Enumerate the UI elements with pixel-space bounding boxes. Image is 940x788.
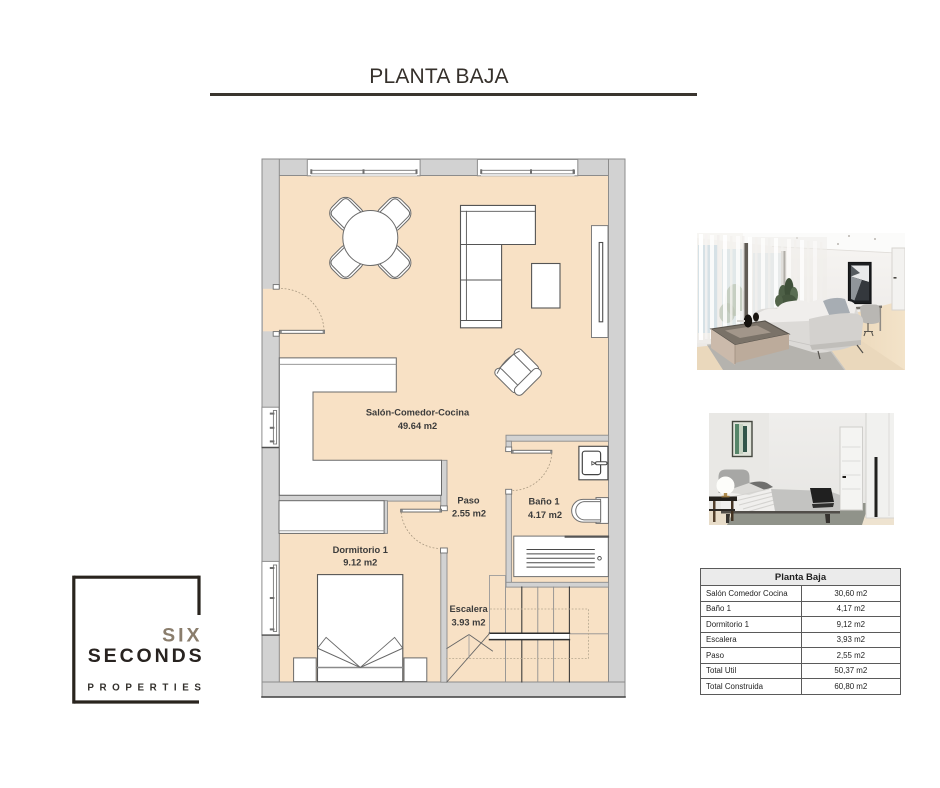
svg-text:Paso: Paso (457, 496, 480, 506)
svg-text:SIX: SIX (162, 625, 202, 647)
svg-text:3.93 m2: 3.93 m2 (451, 618, 485, 628)
svg-text:49.64 m2: 49.64 m2 (398, 421, 437, 431)
svg-text:9.12 m2: 9.12 m2 (343, 558, 377, 568)
svg-text:Dormitorio 1: Dormitorio 1 (333, 545, 388, 555)
svg-text:2.55 m2: 2.55 m2 (452, 509, 486, 519)
svg-text:Baño 1: Baño 1 (529, 497, 560, 507)
svg-text:Salón-Comedor-Cocina: Salón-Comedor-Cocina (366, 408, 470, 418)
svg-text:Escalera: Escalera (449, 604, 488, 614)
svg-text:SECONDS: SECONDS (88, 645, 205, 667)
svg-text:PROPERTIES: PROPERTIES (87, 683, 206, 694)
svg-text:4.17 m2: 4.17 m2 (528, 510, 562, 520)
